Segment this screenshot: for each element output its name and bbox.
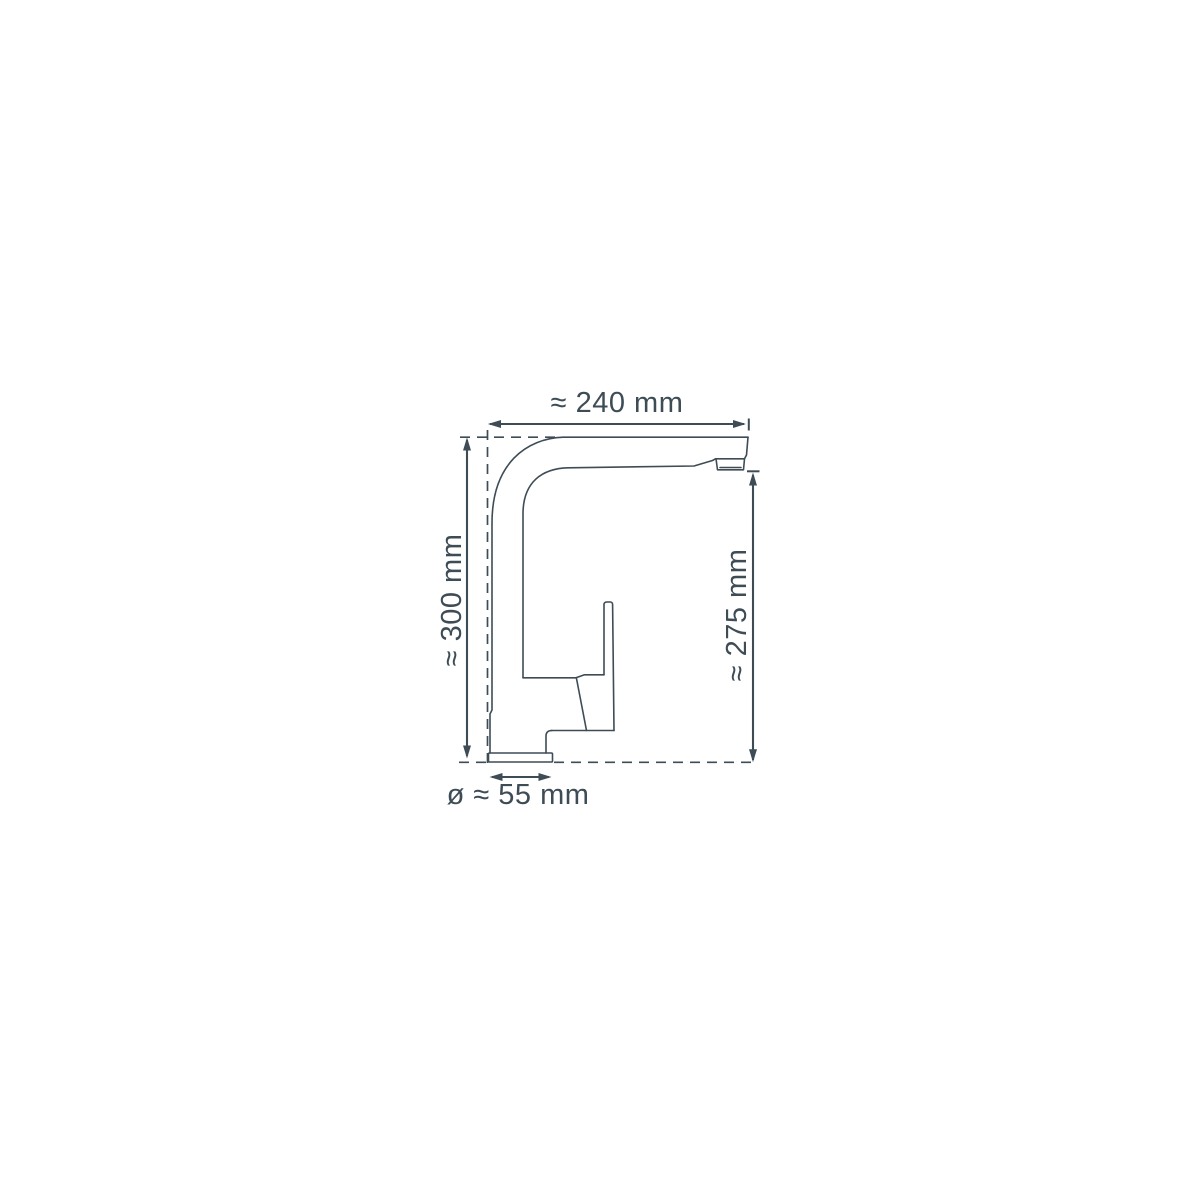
arrow-up-icon: [463, 437, 471, 450]
dimension-label-total-height: ≈ 300 mm: [436, 534, 468, 667]
arrow-down-icon: [749, 749, 757, 762]
faucet-dimension-diagram: ≈ 240 mm ≈ 300 mm ≈ 275 mm ø ≈ 55 mm: [0, 0, 1200, 1200]
dimension-width: ≈ 240 mm: [488, 387, 749, 431]
dimension-label-outlet-height: ≈ 275 mm: [721, 549, 753, 682]
faucet-outer-contour: [490, 437, 748, 753]
faucet-dimension-diagram-page: ≈ 240 mm ≈ 300 mm ≈ 275 mm ø ≈ 55 mm: [0, 0, 1200, 1200]
dimension-outlet-height: ≈ 275 mm: [721, 471, 760, 762]
dimension-total-height: ≈ 300 mm: [436, 437, 471, 758]
arrow-down-icon: [463, 746, 471, 759]
dimension-label-width: ≈ 240 mm: [551, 387, 684, 419]
dimension-base-diameter: ø ≈ 55 mm: [447, 773, 590, 811]
faucet-handle-lever: [604, 602, 614, 731]
faucet-cartridge-front: [577, 679, 587, 731]
extension-lines: [459, 430, 757, 764]
faucet-cartridge-step: [576, 675, 604, 678]
faucet-drawing: [489, 437, 749, 762]
faucet-base-plate: [489, 753, 553, 762]
dimension-label-base-diameter: ø ≈ 55 mm: [447, 779, 590, 811]
arrow-right-icon: [733, 420, 746, 428]
arrow-up-icon: [749, 473, 757, 486]
faucet-column-right-edge: [546, 731, 552, 754]
arrow-left-icon: [488, 420, 501, 428]
faucet-inner-contour: [523, 437, 748, 678]
